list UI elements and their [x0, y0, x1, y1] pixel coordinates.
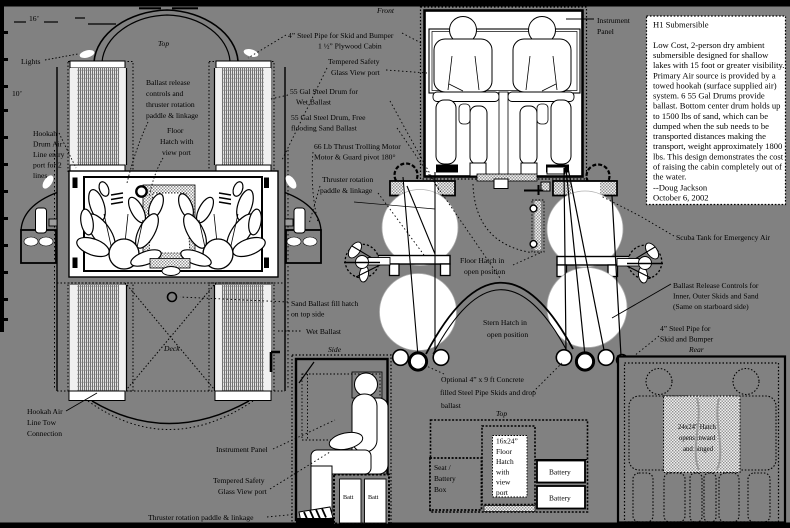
svg-text:1 ½” Plywood Cabin: 1 ½” Plywood Cabin	[318, 42, 382, 51]
svg-text:Instrument: Instrument	[597, 16, 631, 25]
svg-text:Top: Top	[158, 39, 169, 48]
svg-text:Ballast Release Controls for: Ballast Release Controls for	[673, 281, 759, 290]
svg-text:Low Cost, 2-person dry ambient: Low Cost, 2-person dry ambient	[653, 40, 765, 50]
svg-text:Panel: Panel	[597, 27, 614, 36]
svg-text:Instrument Panel: Instrument Panel	[216, 445, 268, 454]
svg-text:H1 Submersible: H1 Submersible	[653, 20, 709, 30]
svg-text:Tempered Safety: Tempered Safety	[213, 476, 265, 485]
svg-text:open position: open position	[464, 267, 505, 276]
svg-text:Lights: Lights	[21, 57, 40, 66]
svg-text:Inner, Outer Skids and Sand: Inner, Outer Skids and Sand	[673, 292, 759, 301]
svg-text:Thruster rotation paddle & lin: Thruster rotation paddle & linkage	[148, 513, 254, 522]
svg-text:66 Lb Thrust Trolling Motor: 66 Lb Thrust Trolling Motor	[314, 142, 401, 151]
svg-text:port for 2: port for 2	[33, 161, 62, 170]
svg-text:towed hookah (surface supplie: towed hookah (surface supplied air)	[653, 81, 777, 91]
svg-text:Ballast release: Ballast release	[146, 78, 191, 87]
svg-text:16’: 16’	[29, 14, 39, 23]
svg-text:Battery: Battery	[549, 494, 571, 503]
svg-text:Top: Top	[496, 409, 507, 418]
svg-text:controls and: controls and	[146, 89, 184, 98]
svg-text:Primary Air source is provided: Primary Air source is provided by a	[653, 70, 776, 80]
svg-text:Hatch with: Hatch with	[160, 137, 194, 146]
svg-text:Stern Hatch in: Stern Hatch in	[483, 318, 527, 327]
svg-text:lakes with 15 foot or greater: lakes with 15 foot or greater visibility…	[653, 60, 784, 70]
svg-text:paddle & linkage: paddle & linkage	[146, 111, 199, 120]
svg-text:Hatch: Hatch	[496, 457, 514, 466]
svg-text:lbs. This design demonstrates: lbs. This design demonstrates the cost	[653, 151, 784, 161]
svg-text:system. 6 55 Gal Drums provid: system. 6 55 Gal Drums provide	[653, 91, 765, 101]
svg-text:Side: Side	[328, 345, 342, 354]
svg-text:Floor: Floor	[167, 126, 184, 135]
svg-text:Seat /: Seat /	[434, 463, 452, 472]
svg-text:to 1500 lbs of sand, which can: to 1500 lbs of sand, which can be	[653, 111, 768, 121]
svg-text:Wet Ballast: Wet Ballast	[306, 327, 342, 336]
svg-text:Front: Front	[376, 6, 395, 15]
svg-text:port: port	[496, 488, 509, 497]
svg-text:Glass View port: Glass View port	[331, 68, 381, 77]
svg-text:Batt: Batt	[343, 494, 354, 501]
svg-text:Wet Ballast: Wet Ballast	[296, 98, 332, 107]
svg-text:Thruster rotation: Thruster rotation	[322, 175, 373, 184]
svg-text:--Doug Jackson: --Doug Jackson	[653, 182, 708, 192]
svg-text:Floor: Floor	[496, 447, 513, 456]
svg-text:Drum Air: Drum Air	[33, 140, 63, 149]
svg-text:Hookah Air: Hookah Air	[27, 407, 63, 416]
svg-text:Line Tow: Line Tow	[27, 418, 57, 427]
svg-text:dumped when the sub needs to b: dumped when the sub needs to be	[653, 121, 769, 131]
svg-text:Optional 4” x 9 ft Concrete: Optional 4” x 9 ft Concrete	[441, 375, 525, 384]
svg-text:Rear: Rear	[688, 345, 704, 354]
svg-text:10’: 10’	[12, 89, 22, 98]
svg-text:Hookah: Hookah	[33, 129, 57, 138]
svg-text:Scuba Tank for Emergency Air: Scuba Tank for Emergency Air	[676, 233, 771, 242]
svg-text:Skid and Bumper: Skid and Bumper	[660, 335, 714, 344]
svg-text:transported distances making t: transported distances making the	[653, 131, 766, 141]
svg-text:paddle & linkage: paddle & linkage	[320, 186, 373, 195]
svg-text:and hinged: and hinged	[683, 446, 714, 453]
svg-text:thruster rotation: thruster rotation	[146, 100, 195, 109]
svg-text:with: with	[496, 467, 509, 476]
svg-text:submersible designed for shall: submersible designed for shallow	[653, 50, 769, 60]
svg-text:(Same on starboard side): (Same on starboard side)	[673, 302, 749, 311]
svg-text:Battery: Battery	[549, 468, 571, 477]
svg-text:the water.: the water.	[653, 172, 686, 182]
svg-text:Batt: Batt	[368, 494, 379, 501]
svg-text:Battery: Battery	[434, 474, 456, 483]
svg-text:Box: Box	[434, 485, 447, 494]
svg-text:flooding Sand Ballast: flooding Sand Ballast	[291, 124, 358, 133]
svg-text:Floor Hatch in: Floor Hatch in	[460, 256, 504, 265]
svg-text:Sand Ballast fill hatch: Sand Ballast fill hatch	[291, 299, 358, 308]
svg-text:open position: open position	[487, 330, 528, 339]
svg-text:4” Steel Pipe for: 4” Steel Pipe for	[660, 324, 711, 333]
svg-text:Tempered Safety: Tempered Safety	[328, 57, 380, 66]
svg-text:ballast. Bottom center drum ho: ballast. Bottom center drum holds up	[653, 101, 780, 111]
svg-text:transport, weight approximatel: transport, weight approximately 1800	[653, 141, 782, 151]
svg-text:Deck: Deck	[163, 344, 180, 353]
svg-text:view: view	[496, 478, 511, 487]
svg-text:ballast: ballast	[441, 401, 462, 410]
svg-text:lines: lines	[33, 171, 47, 180]
svg-text:55 Gal Steel Drum, Free: 55 Gal Steel Drum, Free	[291, 113, 366, 122]
svg-text:55 Gal Steel Drum for: 55 Gal Steel Drum for	[290, 87, 358, 96]
svg-text:4” Steel Pipe for Skid and Bum: 4” Steel Pipe for Skid and Bumper	[288, 31, 394, 40]
svg-text:16x24”: 16x24”	[496, 437, 518, 446]
svg-text:Motor & Guard pivot 180°: Motor & Guard pivot 180°	[314, 153, 396, 162]
svg-text:Line entry: Line entry	[33, 150, 65, 159]
svg-text:Glass View port: Glass View port	[218, 487, 268, 496]
svg-text:October 6, 2002: October 6, 2002	[653, 192, 709, 202]
svg-text:Connection: Connection	[27, 429, 62, 438]
svg-text:of raising the cabin completel: of raising the cabin completely out of	[653, 161, 782, 171]
svg-text:filled Steel Pipe Skids and dr: filled Steel Pipe Skids and drop	[440, 388, 536, 397]
svg-text:on top side: on top side	[291, 310, 325, 319]
svg-text:view port: view port	[162, 148, 192, 157]
